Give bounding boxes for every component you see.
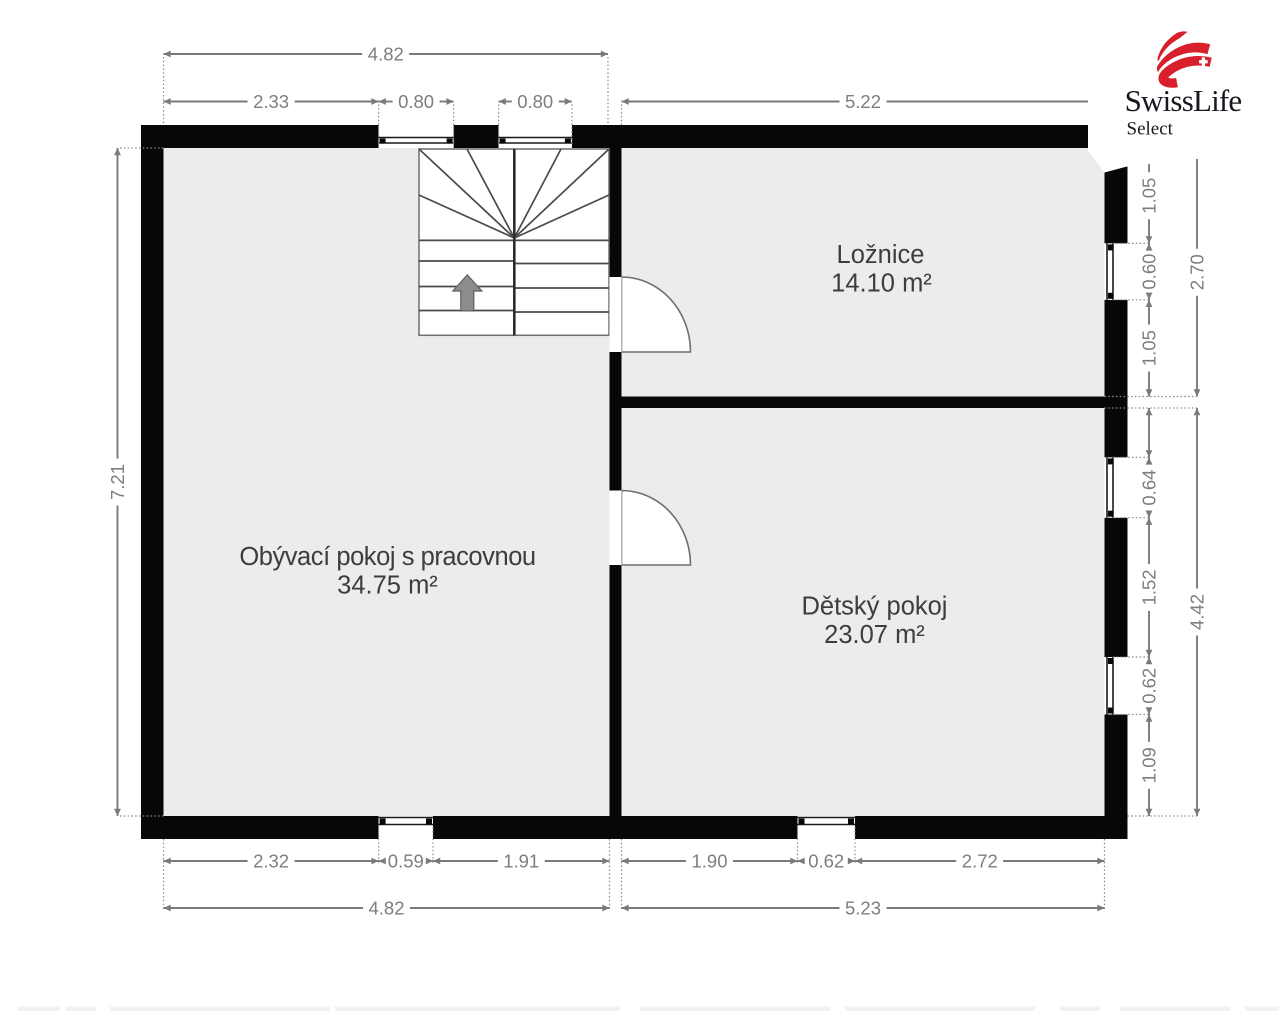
svg-text:1.91: 1.91 <box>503 850 539 871</box>
svg-text:SwissLife: SwissLife <box>1125 83 1242 118</box>
svg-text:1.09: 1.09 <box>1138 747 1159 783</box>
svg-text:1.52: 1.52 <box>1138 569 1159 605</box>
svg-text:0.60: 0.60 <box>1138 254 1159 290</box>
svg-text:0.80: 0.80 <box>517 91 553 112</box>
svg-text:4.42: 4.42 <box>1186 594 1207 630</box>
svg-text:7.21: 7.21 <box>107 464 128 500</box>
svg-text:Obývací pokoj s pracovnou: Obývací pokoj s pracovnou <box>239 543 535 571</box>
svg-text:1.05: 1.05 <box>1138 178 1159 214</box>
svg-text:1.90: 1.90 <box>691 850 727 871</box>
svg-text:0.59: 0.59 <box>388 850 424 871</box>
svg-text:1.05: 1.05 <box>1138 330 1159 366</box>
svg-text:2.33: 2.33 <box>253 91 289 112</box>
svg-text:Dětský pokoj: Dětský pokoj <box>802 593 948 621</box>
svg-text:2.70: 2.70 <box>1186 254 1207 290</box>
svg-text:5.23: 5.23 <box>845 897 881 918</box>
svg-text:0.62: 0.62 <box>1138 668 1159 704</box>
svg-text:14.10 m²: 14.10 m² <box>831 270 932 298</box>
svg-text:4.82: 4.82 <box>368 897 404 918</box>
svg-text:Ložnice: Ložnice <box>837 241 925 269</box>
svg-text:0.62: 0.62 <box>808 850 844 871</box>
svg-text:2.32: 2.32 <box>253 850 289 871</box>
svg-text:2.72: 2.72 <box>962 850 998 871</box>
svg-text:5.22: 5.22 <box>845 91 881 112</box>
svg-text:0.80: 0.80 <box>398 91 434 112</box>
svg-text:4.82: 4.82 <box>368 43 404 64</box>
svg-text:0.64: 0.64 <box>1138 470 1159 506</box>
svg-text:34.75 m²: 34.75 m² <box>337 572 438 600</box>
svg-text:23.07 m²: 23.07 m² <box>824 621 925 649</box>
svg-text:Select: Select <box>1127 119 1174 140</box>
